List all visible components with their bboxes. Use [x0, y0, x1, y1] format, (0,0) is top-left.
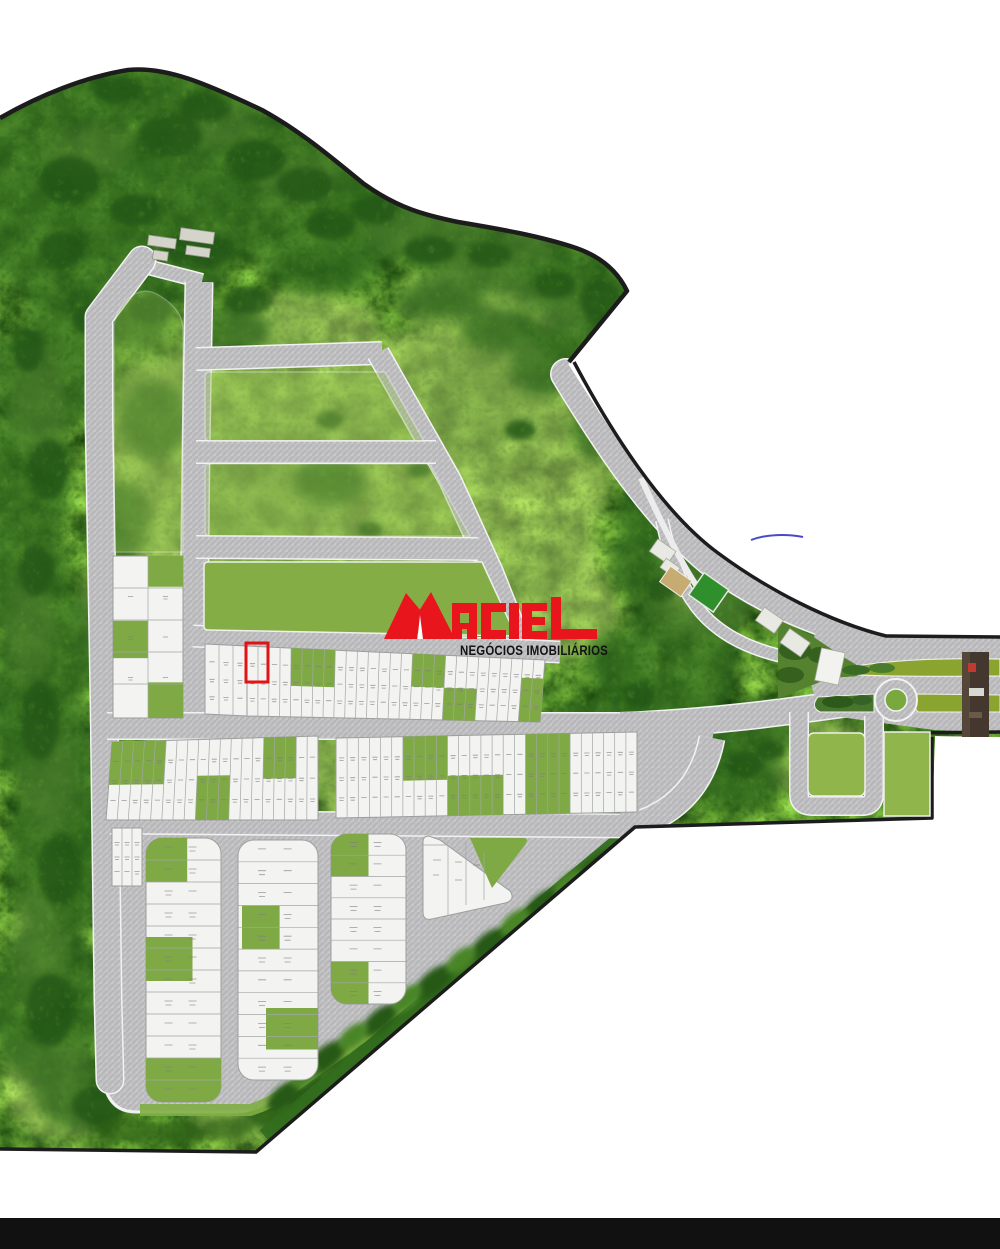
svg-text:NEGÓCIOS IMOBILIÁRIOS: NEGÓCIOS IMOBILIÁRIOS [460, 643, 608, 658]
